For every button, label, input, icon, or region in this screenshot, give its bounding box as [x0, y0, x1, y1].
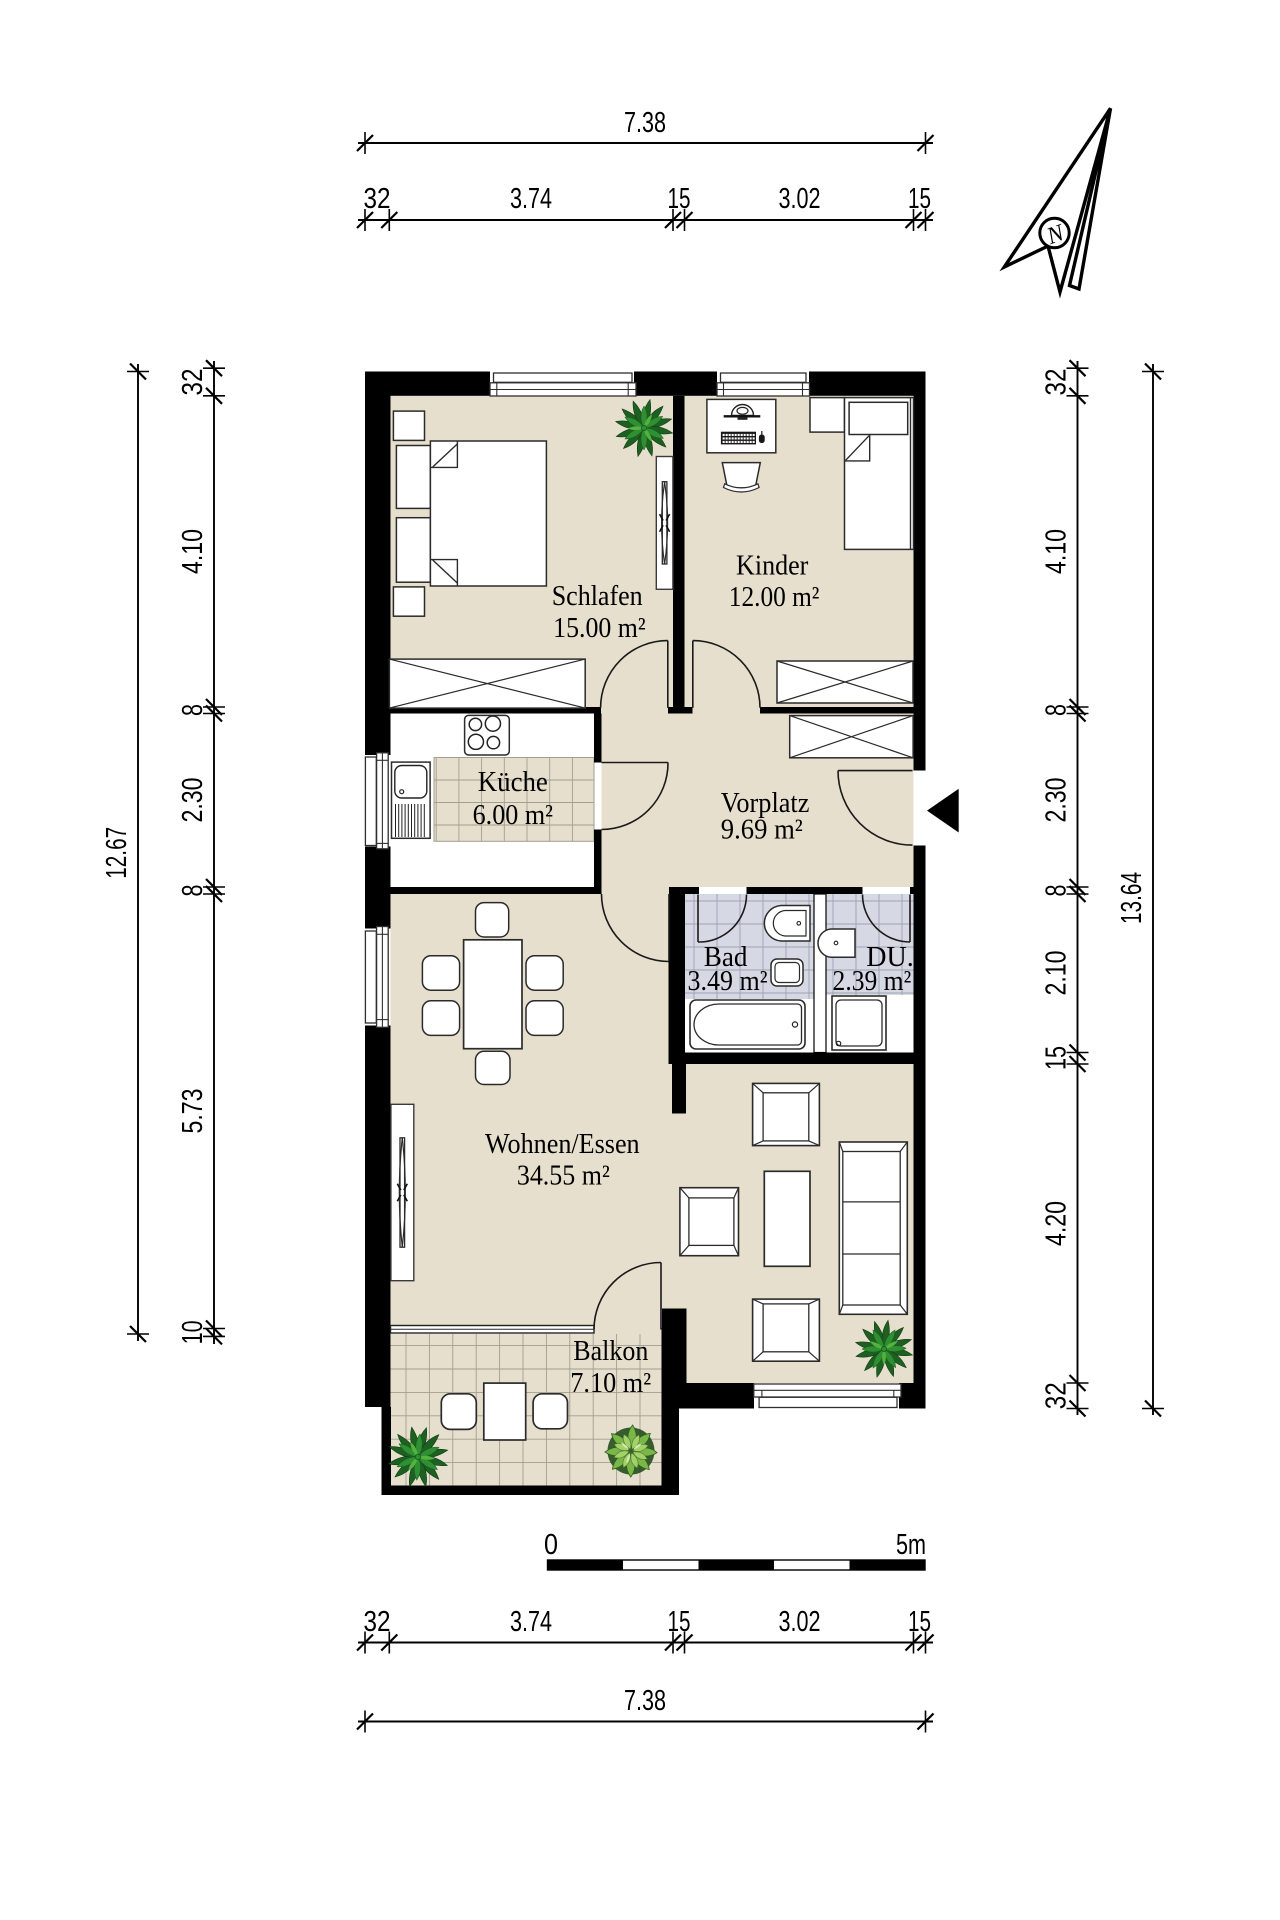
svg-text:32: 32 — [1041, 1382, 1073, 1409]
svg-text:10: 10 — [177, 1320, 209, 1344]
svg-text:15: 15 — [1041, 1046, 1073, 1070]
svg-text:6.00 m²: 6.00 m² — [473, 800, 553, 831]
svg-text:32: 32 — [1041, 369, 1073, 396]
svg-text:4.20: 4.20 — [1041, 1201, 1073, 1246]
svg-text:2.30: 2.30 — [1041, 778, 1073, 823]
svg-text:9.69 m²: 9.69 m² — [721, 815, 803, 846]
svg-text:3.74: 3.74 — [510, 183, 552, 215]
svg-text:3.02: 3.02 — [779, 183, 821, 215]
svg-text:32: 32 — [177, 369, 209, 396]
svg-text:15: 15 — [908, 1606, 931, 1638]
svg-text:3.49 m²: 3.49 m² — [688, 966, 768, 997]
svg-text:12.67: 12.67 — [101, 827, 133, 879]
svg-text:15: 15 — [668, 1606, 691, 1638]
svg-text:32: 32 — [364, 1606, 391, 1638]
svg-text:15.00 m²: 15.00 m² — [553, 613, 646, 644]
svg-text:2.30: 2.30 — [177, 778, 209, 823]
svg-text:3.02: 3.02 — [779, 1606, 821, 1638]
svg-text:0: 0 — [544, 1529, 558, 1561]
svg-text:7.38: 7.38 — [624, 1685, 666, 1717]
svg-text:Wohnen/Essen: Wohnen/Essen — [485, 1129, 640, 1160]
svg-text:34.55 m²: 34.55 m² — [517, 1161, 610, 1192]
svg-text:5m: 5m — [896, 1529, 926, 1561]
svg-text:15: 15 — [668, 183, 691, 215]
svg-text:4.10: 4.10 — [177, 529, 209, 574]
svg-text:32: 32 — [364, 183, 391, 215]
svg-text:8: 8 — [177, 704, 209, 716]
svg-text:Schlafen: Schlafen — [552, 581, 643, 612]
svg-text:5.73: 5.73 — [177, 1089, 209, 1134]
svg-text:Balkon: Balkon — [573, 1336, 648, 1367]
svg-text:Kinder: Kinder — [736, 551, 809, 582]
svg-text:8: 8 — [1041, 885, 1073, 897]
svg-text:7.38: 7.38 — [624, 107, 666, 139]
svg-text:Küche: Küche — [478, 767, 548, 798]
svg-text:12.00 m²: 12.00 m² — [729, 582, 820, 613]
svg-text:8: 8 — [177, 885, 209, 897]
svg-text:7.10 m²: 7.10 m² — [570, 1368, 651, 1399]
svg-text:3.74: 3.74 — [510, 1606, 552, 1638]
svg-text:2.10: 2.10 — [1041, 951, 1073, 996]
svg-text:8: 8 — [1041, 704, 1073, 716]
svg-text:15: 15 — [908, 183, 931, 215]
svg-text:4.10: 4.10 — [1041, 529, 1073, 574]
svg-text:13.64: 13.64 — [1116, 872, 1148, 924]
svg-text:2.39 m²: 2.39 m² — [833, 966, 912, 997]
